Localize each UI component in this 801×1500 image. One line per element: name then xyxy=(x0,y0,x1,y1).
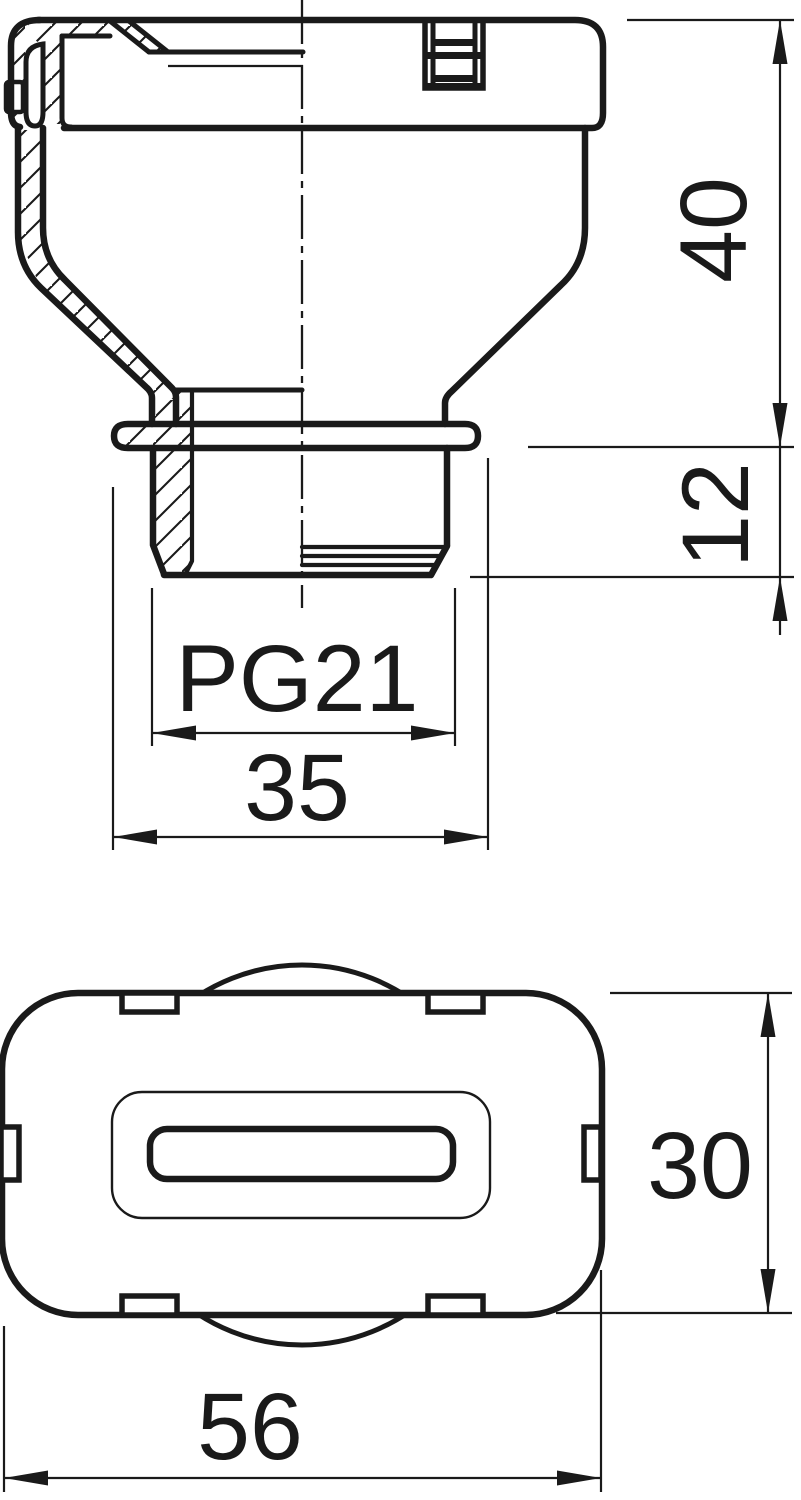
seal-groove-section xyxy=(26,44,43,126)
dim-label-flange-width: 35 xyxy=(244,735,350,841)
drawing-sheet: 40 12 PG21 35 xyxy=(0,0,801,1500)
slot-outline xyxy=(150,1129,453,1179)
dimension-pg21: PG21 xyxy=(152,588,455,746)
technical-drawing: 40 12 PG21 35 xyxy=(0,0,801,1500)
cap-outline xyxy=(11,20,603,424)
latch-detail xyxy=(425,20,483,89)
dim-label-body-depth: 30 xyxy=(647,1113,753,1219)
dim-label-thread-size: PG21 xyxy=(176,626,419,732)
front-section-view: 40 12 PG21 35 xyxy=(6,0,794,850)
dim-label-upper-height: 40 xyxy=(661,177,767,283)
thread-stem-outline xyxy=(153,448,447,575)
dim-label-body-width: 56 xyxy=(197,1374,303,1480)
dim-label-thread-length: 12 xyxy=(663,462,769,568)
plan-view: 30 56 xyxy=(1,965,792,1492)
